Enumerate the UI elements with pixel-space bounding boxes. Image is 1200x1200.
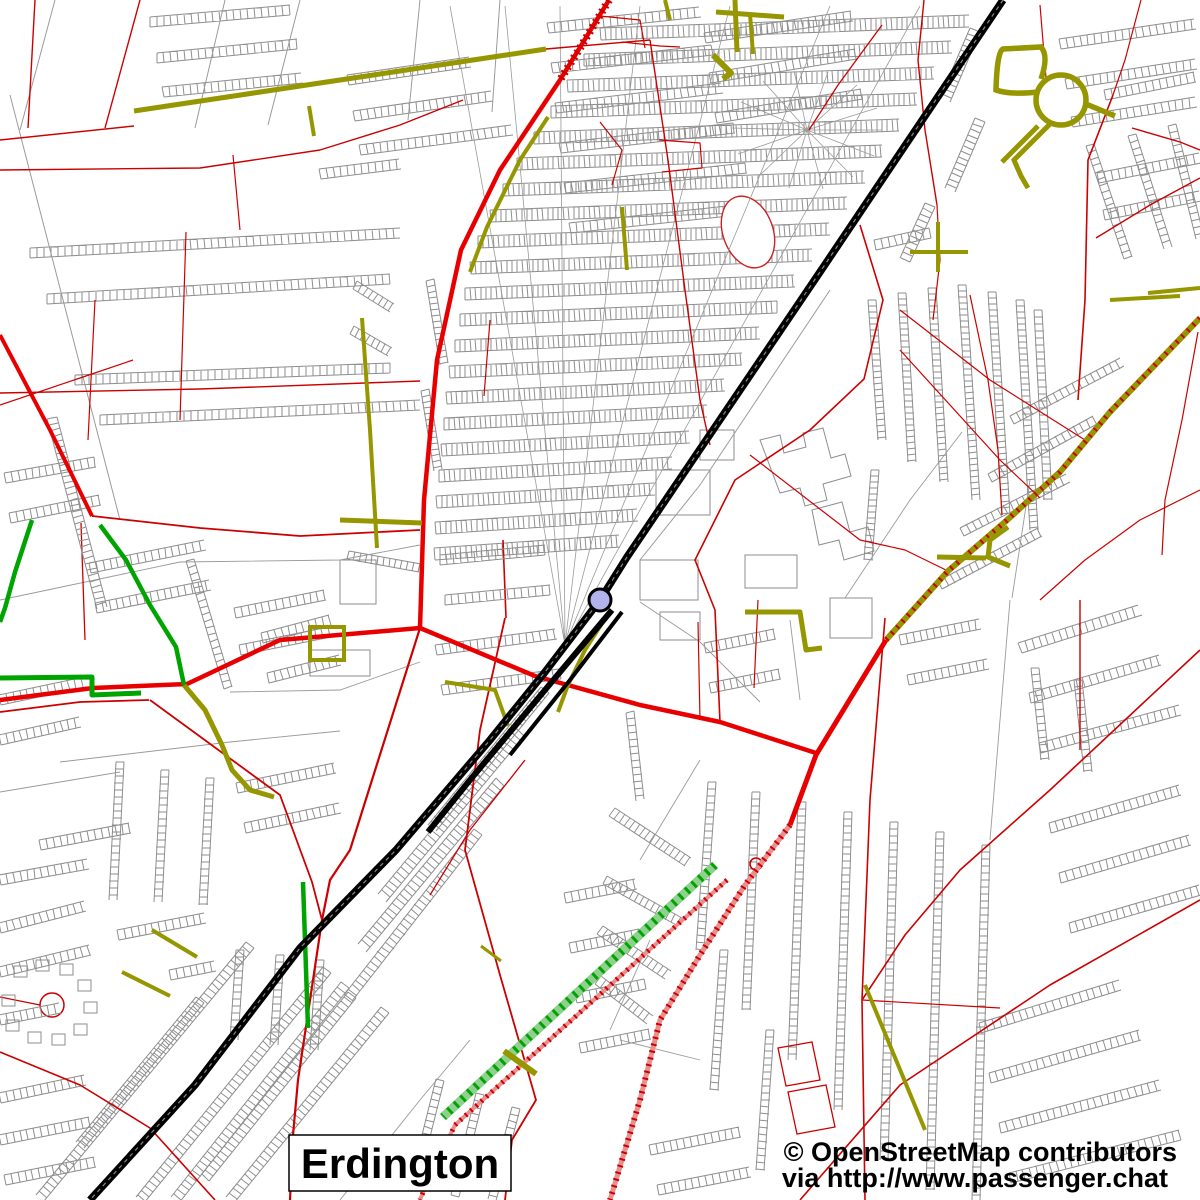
svg-text:via http://www.passenger.chat: via http://www.passenger.chat (782, 1163, 1168, 1193)
svg-text:Erdington: Erdington (301, 1140, 499, 1187)
